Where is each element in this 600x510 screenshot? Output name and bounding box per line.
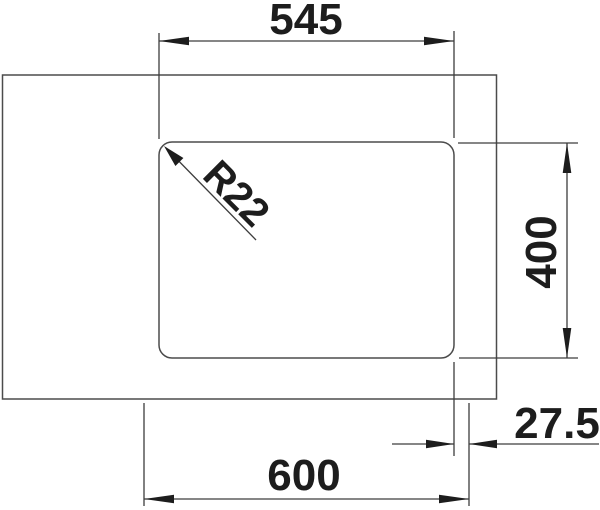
dimension-label-545: 545: [269, 0, 342, 44]
arrow-right-icon: [426, 440, 454, 448]
dimension-label-600: 600: [267, 451, 340, 500]
worktop-outline: [3, 75, 497, 399]
dimension-bottom-width: 600: [144, 403, 469, 506]
arrow-down-icon: [563, 328, 572, 358]
arrow-right-icon: [439, 495, 469, 504]
arrow-up-icon: [563, 143, 572, 173]
arrow-right-icon: [424, 37, 454, 46]
technical-drawing-canvas: 545 400 27.5 600: [0, 0, 600, 510]
arrow-left-icon: [144, 495, 174, 504]
radius-callout: R22: [164, 146, 278, 240]
dimension-label-400: 400: [517, 215, 566, 288]
dimension-label-27-5: 27.5: [514, 399, 600, 448]
arrow-left-icon: [159, 37, 189, 46]
dimension-top-width: 545: [159, 0, 454, 139]
radius-label-r22: R22: [195, 152, 278, 235]
arrow-left-icon: [469, 440, 497, 448]
sink-dimension-drawing: 545 400 27.5 600: [0, 0, 600, 510]
dimension-side-height: 400: [458, 143, 578, 358]
